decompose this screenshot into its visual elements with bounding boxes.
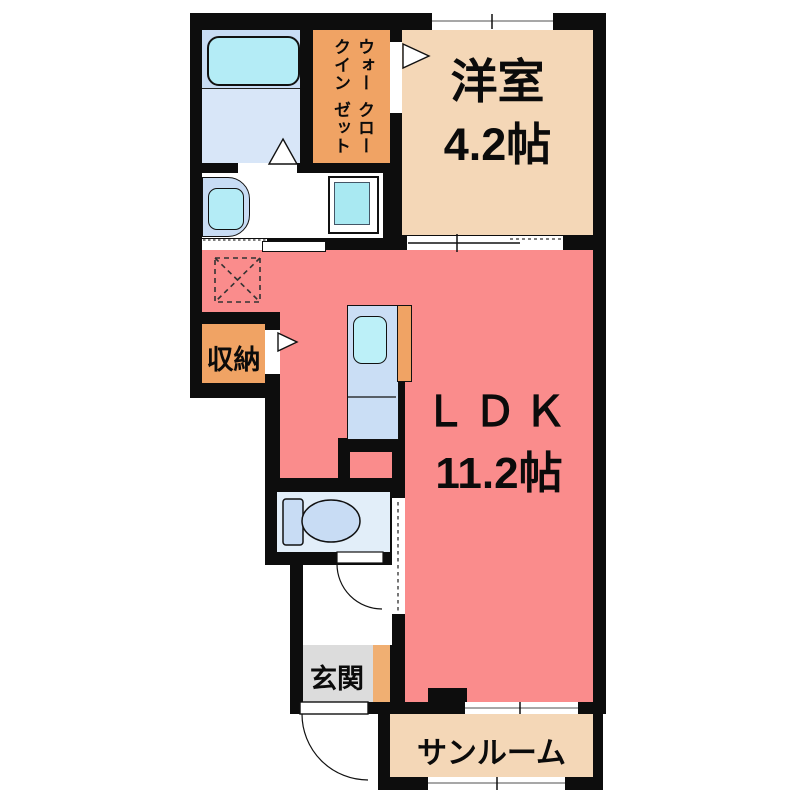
window-western-top — [432, 13, 553, 30]
wic-line2: クローゼット — [328, 97, 376, 161]
wic-line1: ウォークイン — [328, 33, 376, 97]
western-room-size: 4.2帖 — [402, 112, 593, 178]
sliding-door-washroom — [202, 239, 267, 250]
room-washroom — [202, 173, 383, 238]
washbasin-bowl — [208, 188, 244, 230]
walk-in-closet-label: ウォークイン クローゼット — [316, 33, 388, 160]
entrance-shoe-cabinet — [373, 645, 390, 702]
sliding-door-washroom-leaf — [262, 241, 326, 252]
room-toilet — [277, 492, 390, 552]
entrance-label: 玄関 — [301, 657, 373, 696]
western-room-name: 洋室 — [402, 52, 593, 112]
window-sunroom-bottom — [428, 777, 565, 790]
ldk-name: ＬＤＫ — [405, 383, 593, 441]
door-gap-storage — [265, 330, 280, 374]
room-ldk-upper — [202, 250, 593, 312]
ldk-size: 11.2帖 — [405, 441, 593, 507]
sliding-door-hallway-ldk — [392, 498, 405, 614]
floor-plan: 洋室 4.2帖 ＬＤＫ 11.2帖 ウォークイン クローゼット 収納 玄関 サン… — [0, 0, 800, 800]
kitchen-sink — [353, 316, 387, 364]
ldk-label: ＬＤＫ 11.2帖 — [405, 383, 593, 507]
bathtub — [207, 36, 300, 86]
storage-label: 収納 — [202, 338, 265, 377]
window-ldk-sunroom — [465, 702, 578, 714]
room-bathroom — [202, 30, 300, 163]
sliding-door-western-ldk — [407, 236, 563, 250]
room-ldk-lower — [405, 478, 593, 702]
entrance-door-arc — [302, 714, 368, 780]
western-room-label: 洋室 4.2帖 — [402, 52, 593, 178]
door-gap-wic — [390, 42, 402, 113]
door-gap-bathroom — [238, 163, 297, 173]
wall-kitchen-left-stub — [338, 438, 350, 492]
kitchen-side-panel — [397, 305, 412, 382]
room-hallway — [303, 565, 392, 645]
sunroom-label: サンルーム — [390, 728, 593, 772]
ldk-window-step — [428, 688, 467, 702]
washing-machine-space — [328, 176, 379, 234]
